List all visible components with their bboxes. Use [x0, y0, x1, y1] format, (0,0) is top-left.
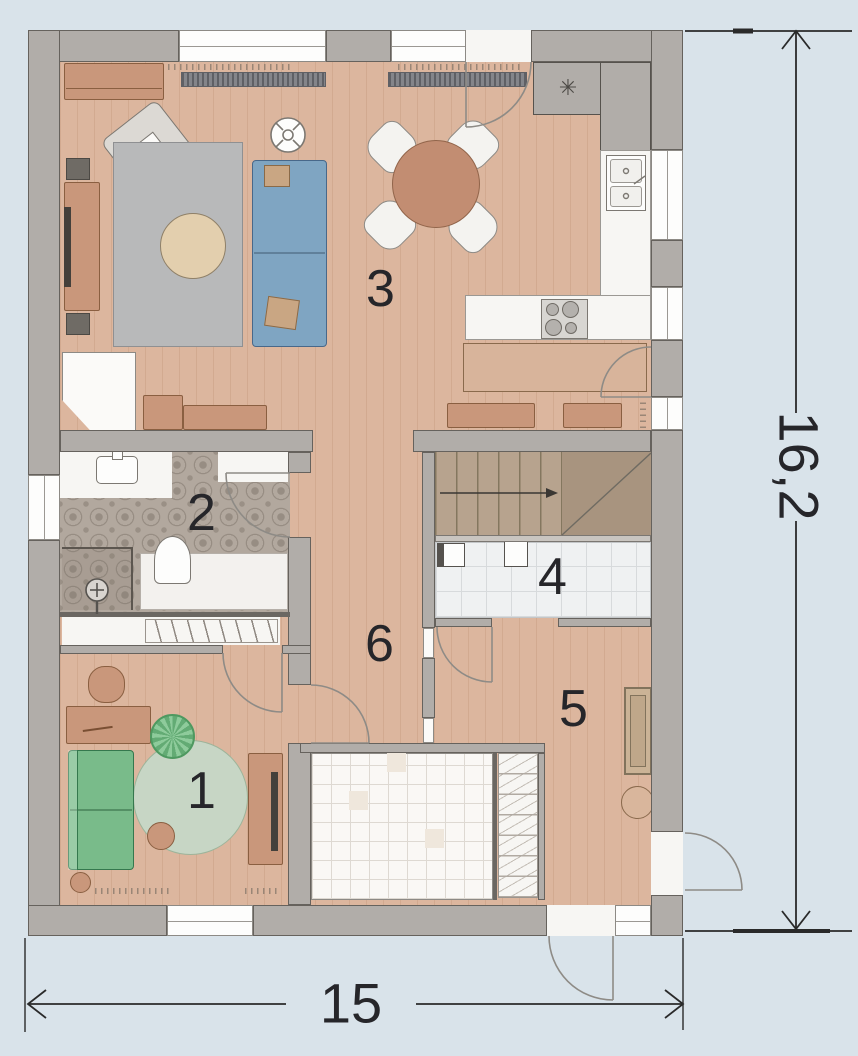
exterior-wall-bottom — [28, 905, 167, 936]
wall-room4-south — [558, 618, 651, 627]
sofa-pillow — [264, 165, 290, 187]
window — [651, 150, 683, 240]
exterior-wall-left — [28, 540, 60, 936]
exterior-wall-right — [651, 30, 683, 150]
radiator-squiggle — [245, 888, 278, 894]
radiator-squiggle — [95, 888, 170, 894]
door-opening-right — [651, 832, 683, 895]
wall-hall-east — [422, 658, 435, 718]
burner — [546, 303, 559, 316]
door-leaf — [423, 718, 434, 743]
wall-room1-north — [282, 645, 311, 654]
window — [615, 905, 651, 936]
closet-left-hangers — [145, 619, 278, 643]
wall-room1-north — [60, 645, 223, 654]
bath-faucet — [112, 451, 123, 460]
wardrobe-tv-bar — [271, 772, 278, 851]
wall-terrace-closet — [493, 753, 497, 900]
sink-bowl — [610, 186, 642, 207]
exterior-wall-top — [326, 30, 391, 62]
tv-panel — [64, 207, 71, 287]
appliance-handle — [437, 543, 444, 567]
freezer-icon: ✳ — [552, 72, 584, 104]
sink-bowl — [610, 159, 642, 183]
stairs-upper-flight — [562, 452, 651, 535]
window — [651, 287, 683, 340]
pouf — [147, 822, 175, 850]
sofa-green-back — [68, 750, 78, 870]
wall-above-stairs — [413, 430, 651, 452]
sideboard-line — [66, 88, 162, 89]
dining-table — [392, 140, 480, 228]
kitchen-island — [463, 343, 647, 392]
window — [28, 475, 60, 540]
window — [179, 30, 326, 62]
side-table-room5 — [621, 786, 654, 819]
room-label-4: 4 — [538, 547, 568, 607]
curtain-blind-2 — [388, 72, 527, 87]
radiator-squiggle — [640, 398, 646, 428]
wall-terrace-north — [300, 743, 545, 753]
wall-hall-bath — [288, 452, 311, 473]
bathroom-door-area — [218, 452, 288, 482]
burner — [545, 319, 562, 336]
exterior-wall-bottom — [253, 905, 547, 936]
dimension-height: 16,2 — [767, 412, 832, 521]
terrace-tile-tint — [387, 753, 406, 772]
wall-bath-closet — [60, 612, 290, 617]
room-label-1: 1 — [187, 761, 217, 821]
burner — [565, 322, 577, 334]
sofa-pillow — [264, 296, 300, 330]
sideboard — [64, 63, 164, 100]
window-bench — [143, 395, 183, 430]
appliance — [504, 540, 528, 567]
speaker — [66, 313, 90, 335]
speaker — [66, 158, 90, 180]
exterior-wall-right — [651, 340, 683, 397]
window-bench — [183, 405, 267, 430]
terrace-tile-tint — [349, 791, 368, 810]
potted-plant — [150, 714, 195, 759]
closet-right-floor — [498, 753, 538, 898]
entrance-door-opening — [547, 905, 615, 936]
toilet — [154, 536, 191, 584]
dimension-width: 15 — [320, 971, 382, 1036]
radiator-squiggle — [398, 64, 520, 70]
dining-bench — [447, 403, 535, 428]
curtain-blind-1 — [181, 72, 326, 87]
exterior-wall-right — [651, 240, 683, 287]
bath-sink — [96, 456, 138, 484]
terrace-tile-tint — [425, 829, 444, 848]
radiator-squiggle — [168, 64, 290, 70]
burner — [562, 301, 579, 318]
exterior-wall-right — [651, 895, 683, 936]
window — [167, 905, 253, 936]
coffee-table — [160, 213, 226, 279]
room-label-6: 6 — [365, 614, 395, 674]
exterior-wall-right — [651, 430, 683, 832]
dining-bench — [563, 403, 622, 428]
wall-hall-room1 — [288, 743, 311, 905]
wall-hall-east — [422, 452, 435, 628]
wall-room4-south — [435, 618, 492, 627]
window — [391, 30, 466, 62]
door-leaf — [423, 628, 434, 658]
door-opening-top — [466, 30, 531, 62]
mini-pouf — [70, 872, 91, 893]
sofa-blue-seam — [254, 252, 325, 254]
wall-closet-room5 — [538, 753, 545, 900]
wall-hall-bath — [288, 537, 311, 685]
window — [651, 397, 683, 430]
wall-stairs-room4 — [435, 535, 651, 542]
exterior-wall-left — [28, 30, 60, 475]
desk-chair — [88, 666, 125, 703]
wall-living-south — [60, 430, 313, 452]
room-label-2: 2 — [187, 483, 217, 543]
shower-area — [62, 547, 133, 610]
floor-plan-canvas: ✳ — [0, 0, 858, 1056]
terrace-floor — [311, 753, 493, 900]
sofa-green-seam — [70, 809, 132, 811]
room-label-5: 5 — [559, 679, 589, 739]
radiator-room5-inner — [630, 695, 646, 767]
room-label-3: 3 — [366, 259, 396, 319]
kitchen-corner-unit — [600, 62, 651, 152]
